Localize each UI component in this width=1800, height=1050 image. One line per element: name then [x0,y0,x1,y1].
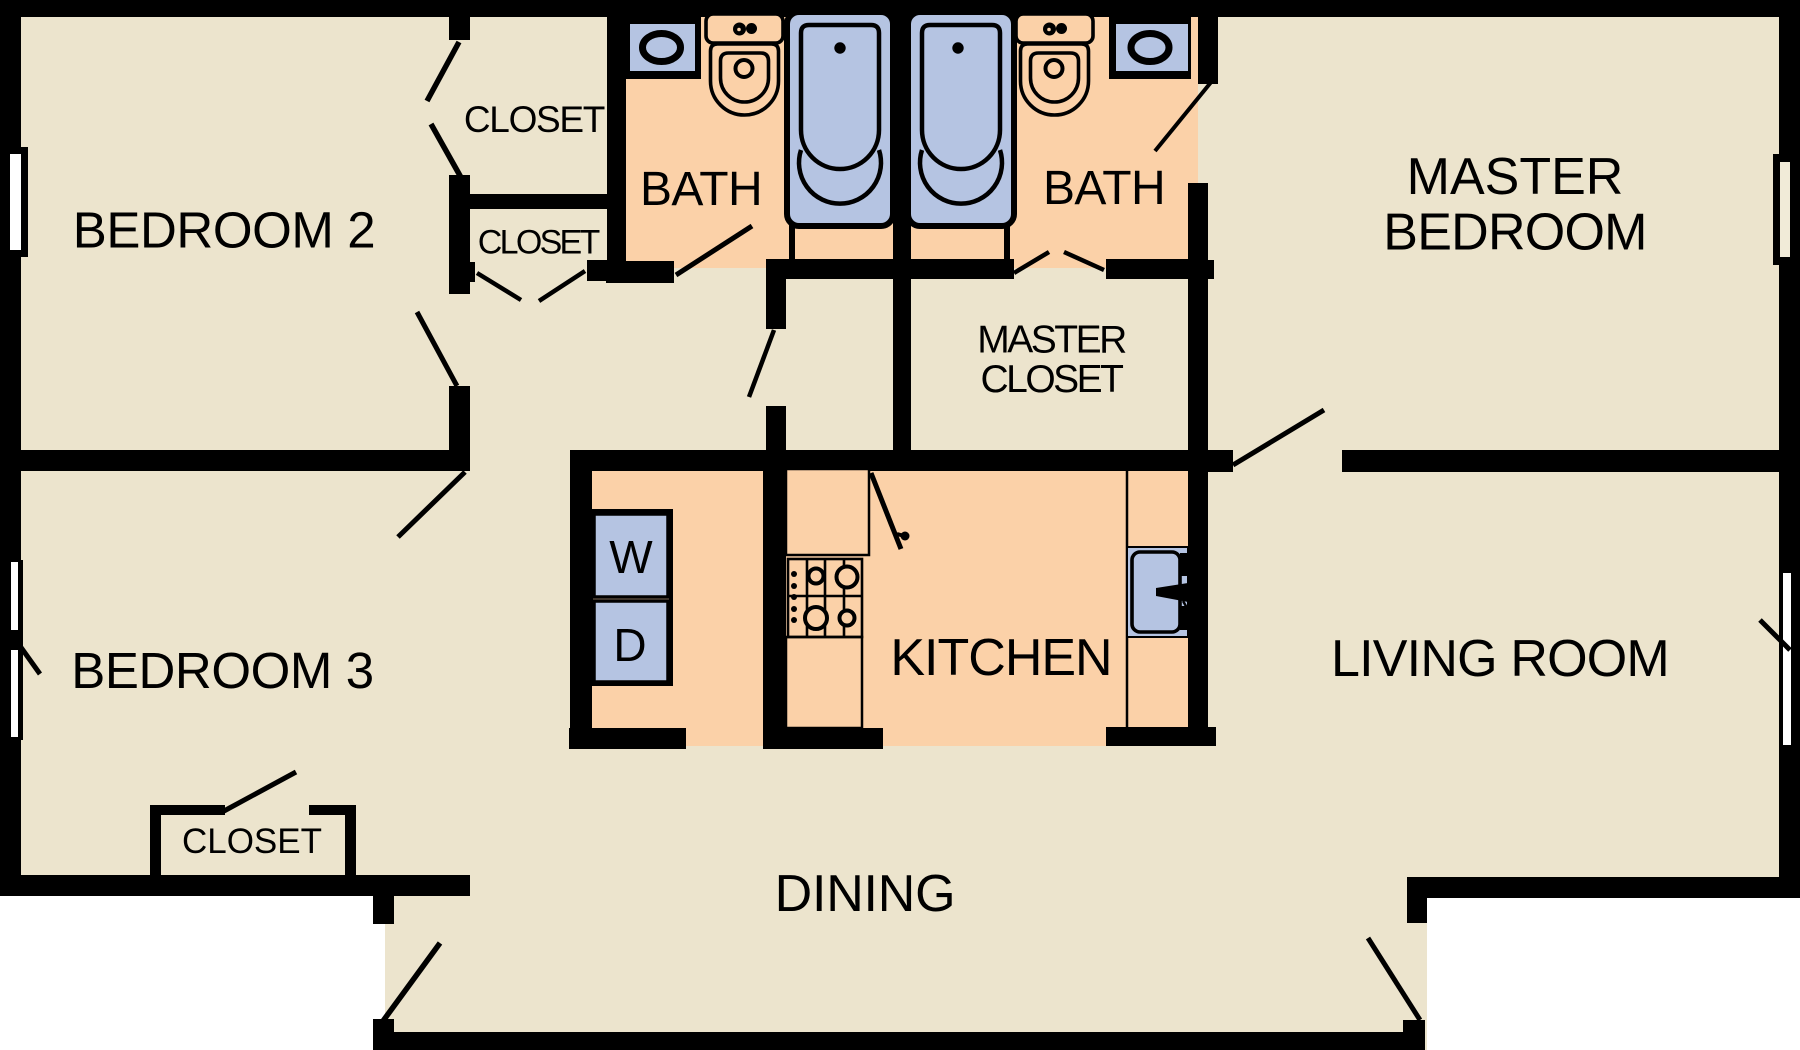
svg-text:DINING: DINING [775,865,956,923]
svg-text:BEDROOM: BEDROOM [1383,204,1646,262]
svg-text:BEDROOM 2: BEDROOM 2 [73,202,375,259]
svg-text:BATH: BATH [1043,162,1165,215]
svg-text:W: W [609,531,653,583]
svg-text:BATH: BATH [640,163,762,216]
svg-text:CLOSET: CLOSET [478,224,600,262]
svg-text:MASTER: MASTER [977,319,1126,362]
svg-text:KITCHEN: KITCHEN [890,629,1111,687]
svg-text:D: D [613,619,646,671]
svg-text:MASTER: MASTER [1407,148,1624,206]
svg-text:CLOSET: CLOSET [182,822,322,861]
svg-text:CLOSET: CLOSET [980,358,1123,401]
svg-text:LIVING ROOM: LIVING ROOM [1331,630,1669,688]
svg-text:CLOSET: CLOSET [464,99,605,140]
svg-text:BEDROOM 3: BEDROOM 3 [71,642,373,699]
